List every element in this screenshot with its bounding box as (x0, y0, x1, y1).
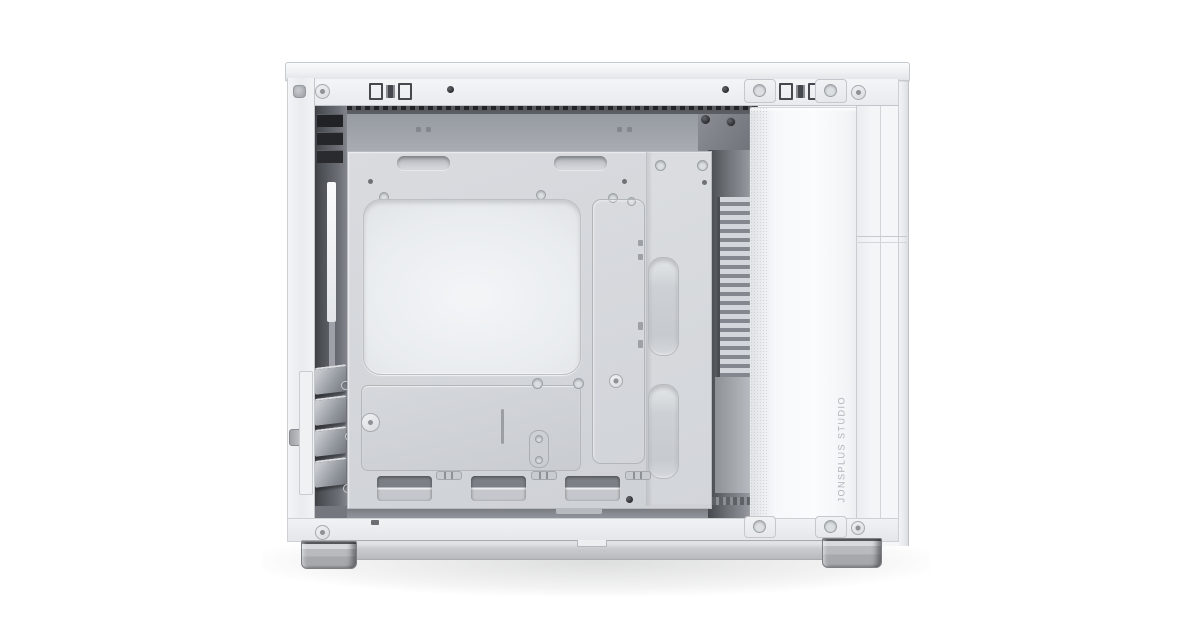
subpanel-notch (638, 254, 643, 260)
chassis-mark (627, 127, 632, 132)
rear-panel-inner-line (898, 70, 899, 542)
tab-hole (753, 520, 766, 533)
screw (626, 496, 633, 503)
pcie-slot-cover (315, 395, 346, 426)
screw (722, 86, 729, 93)
io-knockouts-left (369, 83, 412, 100)
screw (315, 84, 330, 99)
front-column-mesh-strip (750, 107, 768, 518)
bottom-vent-cutout (377, 476, 432, 501)
panel-thumbscrew (361, 413, 380, 432)
screw-hole (622, 179, 627, 184)
cable-routing-slot-left (397, 156, 450, 171)
knockout (796, 85, 805, 98)
screw (726, 117, 736, 127)
pcie-slot-cover (315, 457, 346, 488)
base-rail-notch (577, 540, 607, 547)
louvered-vent-bracket (717, 197, 753, 377)
screw (851, 521, 865, 535)
product-photo-stage: JONSPLUS STUDIO (0, 0, 1200, 630)
gap-lower-panel (715, 377, 750, 493)
panel-slot (501, 409, 504, 444)
standoff-hole (697, 160, 708, 171)
screw-hole (368, 179, 373, 184)
screw (447, 86, 454, 93)
screw (315, 525, 330, 540)
screw-hole (535, 435, 543, 443)
knockout (386, 85, 395, 98)
gap-bottom-perforation (712, 497, 752, 505)
inner-chassis-top-panel (311, 114, 758, 152)
pcie-slot-cover (315, 426, 346, 457)
chassis-mark (416, 127, 421, 132)
case-foot-right (822, 538, 882, 568)
rear-fan-slat (317, 150, 343, 163)
subpanel-notch (638, 240, 643, 246)
standoff-hole (573, 378, 584, 389)
knockout (369, 83, 383, 100)
mount-slot (531, 471, 557, 480)
screw-hole (535, 456, 543, 464)
brand-text: JONSPLUS STUDIO (836, 403, 849, 503)
cable-cover-subpanel (592, 199, 645, 464)
cable-cutout-lower (648, 384, 679, 479)
rear-fan-slat (317, 132, 343, 145)
case-foot-left (301, 541, 357, 569)
rear-light-slit (327, 182, 336, 322)
rail-mark (371, 520, 379, 525)
screw (701, 115, 710, 124)
knockout (398, 83, 412, 100)
knockout (779, 83, 793, 100)
chassis-mark (426, 127, 431, 132)
tab-hole (824, 520, 837, 533)
side-panel-seam (856, 236, 907, 243)
mount-slot (436, 471, 462, 480)
rear-fan-slat (317, 114, 343, 127)
bottom-vent-cutout (471, 476, 526, 501)
screw (851, 85, 866, 100)
side-bracket-outline (299, 371, 313, 495)
rear-light-slit-dim (329, 322, 335, 368)
subpanel-notch (638, 340, 643, 348)
tab-hole (753, 84, 766, 97)
front-panel-knob (293, 85, 306, 98)
pcie-slot-cover (315, 364, 346, 395)
cable-routing-slot-right (554, 156, 607, 171)
rear-panel-edge-outer (880, 66, 909, 546)
screw-hole (702, 180, 707, 185)
chassis-mark (617, 127, 622, 132)
rear-panel-edge-inner (856, 78, 881, 540)
standoff-hole (655, 160, 666, 171)
standoff-hole (532, 378, 543, 389)
subpanel-notch (638, 322, 643, 330)
tab-hole (824, 84, 837, 97)
bottom-vent-cutout (565, 476, 620, 501)
mount-slot (625, 471, 651, 480)
cable-cutout-upper (648, 257, 679, 356)
cpu-backplate-cutout (363, 199, 581, 375)
screw (609, 374, 623, 388)
